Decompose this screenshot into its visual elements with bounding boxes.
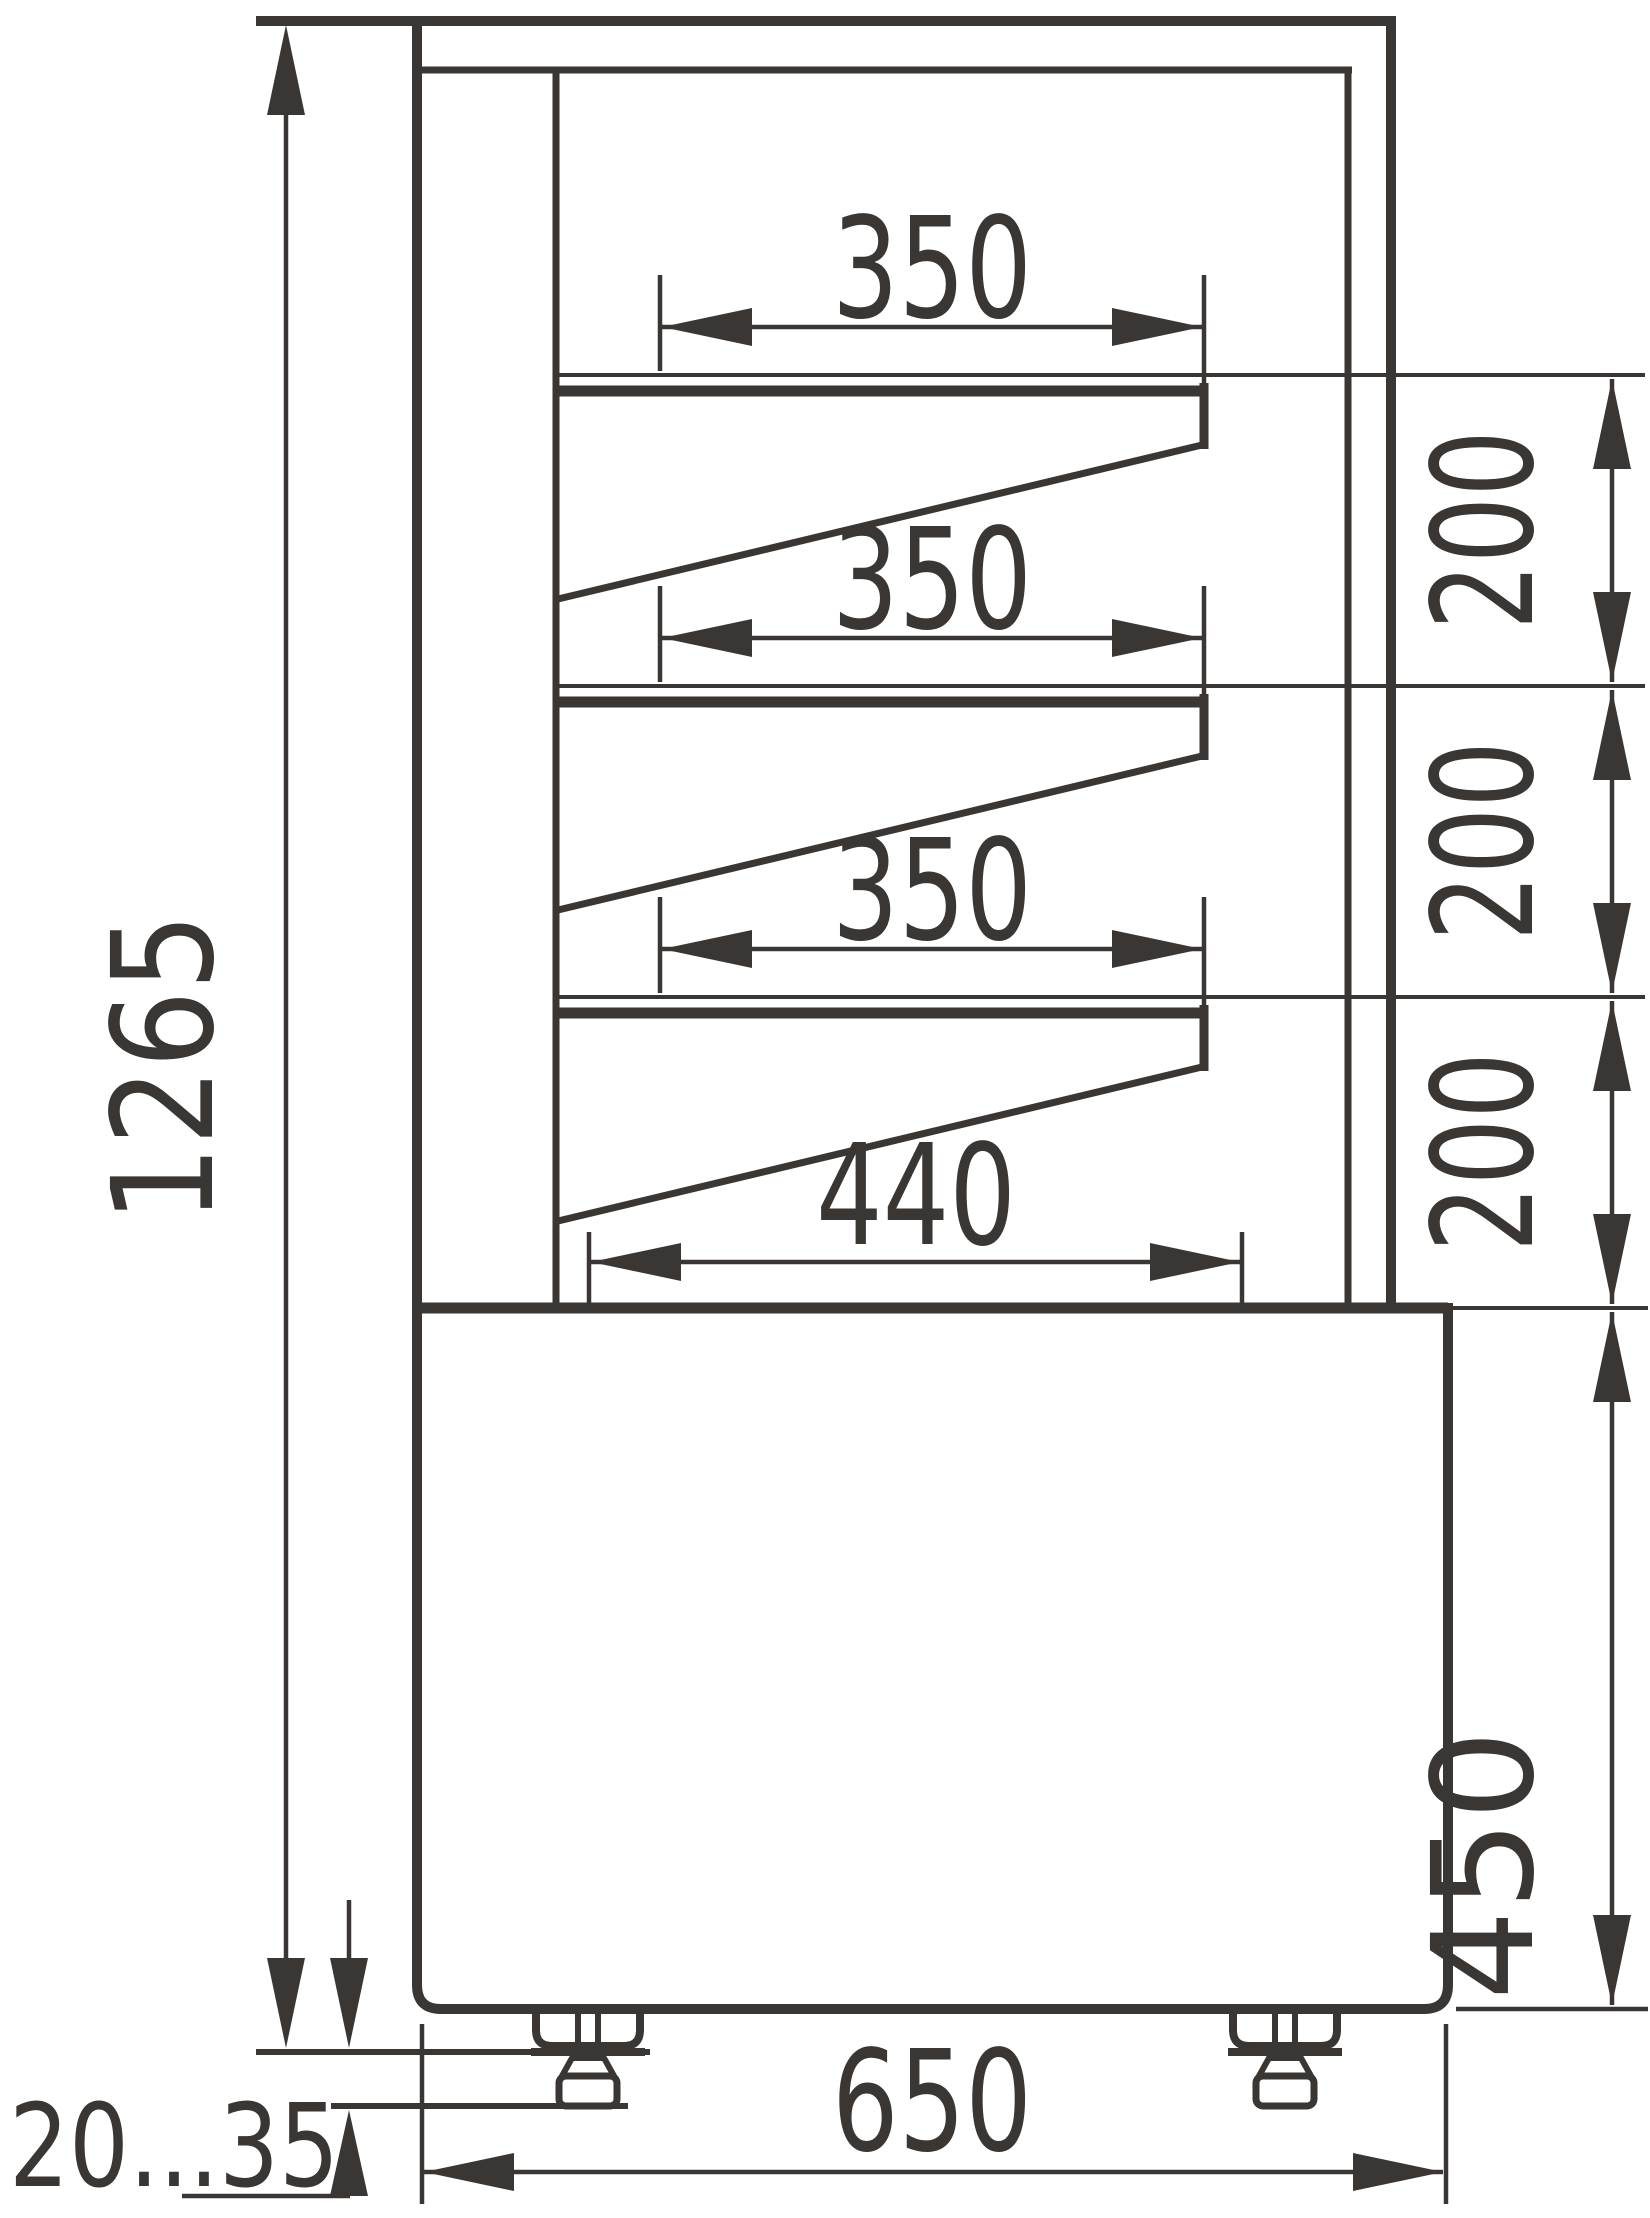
deck-depth-label: 440 [816,1115,1016,1278]
arrow-down-icon [330,1958,368,2048]
shelf-1-depth-label: 350 [832,188,1032,351]
leg-left [531,2014,645,2106]
overall-height-dimension: 1265 [83,25,305,2048]
shelf-2-dimension: 350 [660,499,1204,694]
arrow-down-icon [1593,1214,1631,1304]
arrow-right-icon [1353,2153,1443,2191]
arrow-left-icon [662,619,752,657]
base-cabinet-outline [417,1303,1448,2009]
deck-dimension: 440 [589,1115,1242,1307]
arrow-down-icon [1593,1915,1631,2005]
foot-adjust-dimension: 20...35 [9,1900,650,2214]
gap-2-label: 200 [1403,741,1566,941]
shelf-3-depth-label: 350 [832,810,1032,973]
arrow-down-icon [267,1958,305,2048]
shelf-1-dimension: 350 [660,188,1204,383]
leg-right [1228,2014,1342,2106]
technical-drawing-page: 350 350 350 440 [0,0,1650,2218]
right-dimension-chain: 200 200 200 450 [1403,379,1648,2009]
foot-adjust-label: 20...35 [9,2080,339,2214]
leg-right-foot-pad [1256,2076,1314,2106]
gap-3-label: 200 [1403,1052,1566,1252]
shelf-3-dimension: 350 [660,810,1204,1005]
arrow-right-icon [1112,308,1202,346]
arrow-down-icon [1593,592,1631,682]
arrow-left-icon [591,1243,681,1281]
display-case-section-drawing: 350 350 350 440 [0,0,1650,2218]
arrow-left-icon [662,308,752,346]
arrow-up-icon [267,25,305,115]
arrow-left-icon [662,930,752,968]
gap-1-label: 200 [1403,430,1566,630]
arrow-right-icon [1112,930,1202,968]
arrow-up-icon [1593,1312,1631,1402]
arrow-up-icon [1593,379,1631,469]
arrow-up-icon [1593,1001,1631,1091]
arrow-down-icon [1593,903,1631,993]
base-height-label: 450 [1403,1730,1566,2000]
leg-right-bracket [1233,2014,1337,2046]
arrow-left-icon [424,2153,514,2191]
leg-left-bracket [536,2014,640,2046]
overall-depth-label: 650 [832,2021,1032,2184]
arrow-right-icon [1112,619,1202,657]
shelf-2-depth-label: 350 [832,499,1032,662]
arrow-up-icon [1593,690,1631,780]
leg-left-foot-pad [559,2076,617,2106]
overall-height-label: 1265 [83,913,246,1223]
arrow-right-icon [1150,1243,1240,1281]
